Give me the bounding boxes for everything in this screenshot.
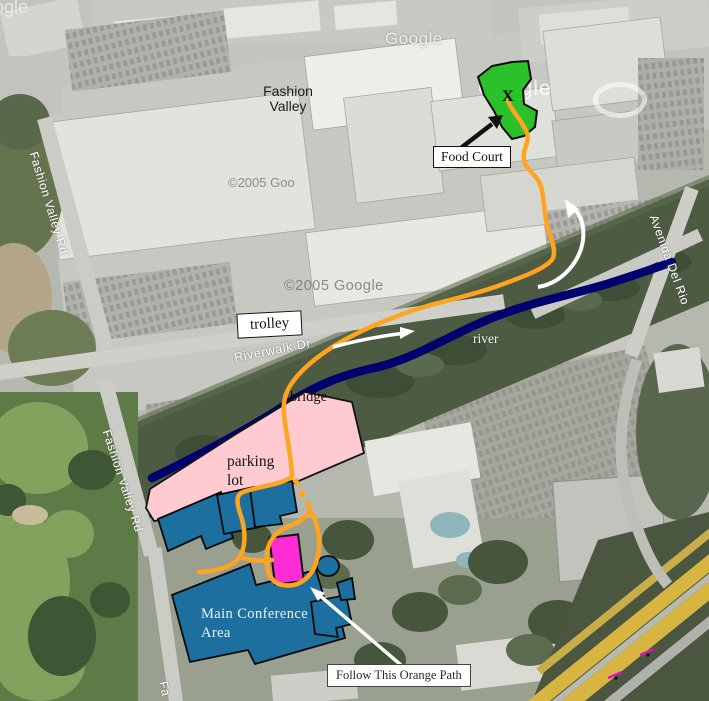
main-conference-label: Main Conference Area [201,605,308,643]
satellite-map[interactable]: ogle Google Google ©2005 Goo ©2005 Googl… [0,0,709,701]
river-label: river [473,331,498,347]
mall-name-line1: Fashion [238,84,338,99]
bridge-label: bridge [290,389,327,406]
parking-lot-line1: parking [227,452,274,471]
follow-path-label: Follow This Orange Path [327,664,471,687]
orange-route-dotted [295,479,311,511]
road-label-fashion-valley-partial: Fa [156,680,173,698]
mall-name-line2: Valley [238,99,338,114]
trolley-label: trolley [236,310,302,338]
conference-building-6 [337,578,355,600]
food-court-x-marker: X [502,88,514,106]
parking-lot-line2: lot [227,471,274,490]
route-annotations [0,0,709,701]
highway-marker [608,649,654,680]
main-conference-line1: Main Conference [201,605,308,624]
main-conference-line2: Area [201,624,308,643]
parking-lot-label: parking lot [227,452,274,490]
food-court-label: Food Court [433,146,511,168]
mall-name-label: Fashion Valley [238,84,338,114]
conference-room-highlight [269,534,304,584]
pool-shape [317,556,339,576]
